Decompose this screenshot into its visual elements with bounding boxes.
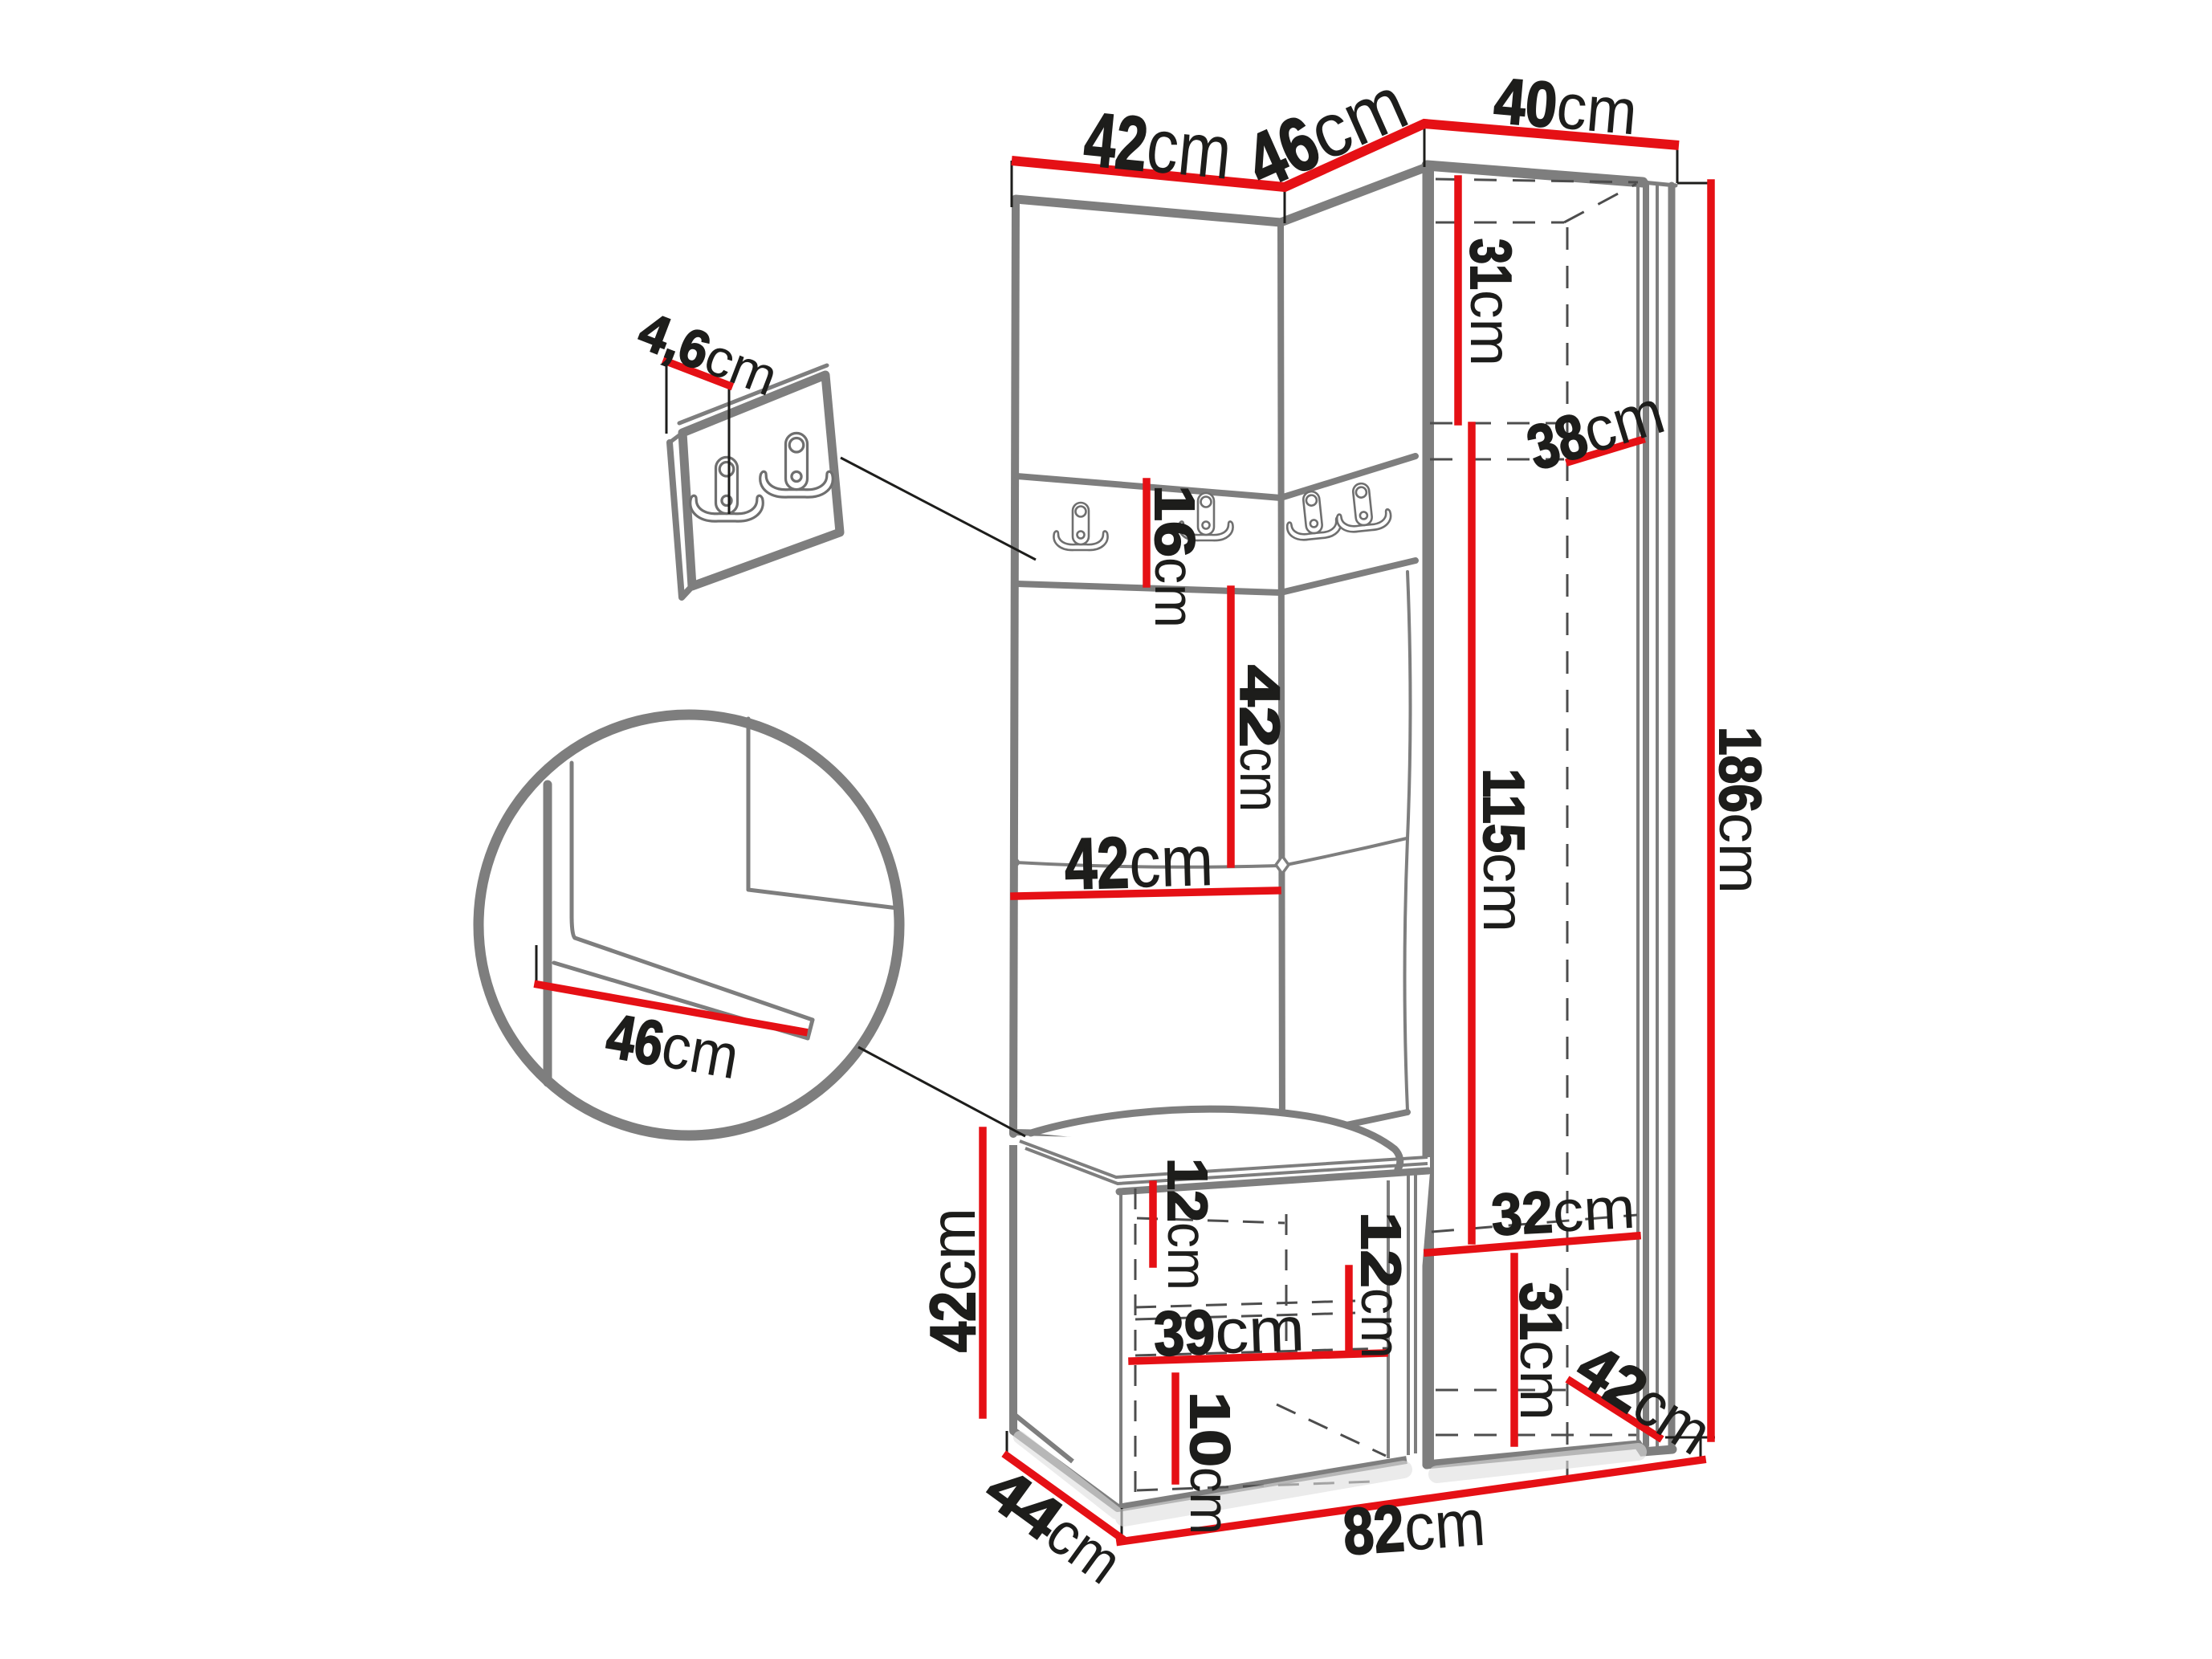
svg-text:12cm: 12cm xyxy=(1156,1158,1219,1290)
svg-text:42cm: 42cm xyxy=(1064,821,1215,905)
svg-text:42cm: 42cm xyxy=(1228,665,1291,812)
svg-text:32cm: 32cm xyxy=(1490,1176,1637,1248)
svg-text:31cm: 31cm xyxy=(1508,1282,1573,1421)
svg-text:186cm: 186cm xyxy=(1707,727,1772,894)
svg-text:42cm: 42cm xyxy=(917,1208,988,1352)
svg-text:16cm: 16cm xyxy=(1143,485,1206,628)
svg-text:31cm: 31cm xyxy=(1458,238,1522,366)
svg-text:39cm: 39cm xyxy=(1153,1293,1306,1369)
svg-text:40cm: 40cm xyxy=(1492,64,1640,148)
svg-text:42cm: 42cm xyxy=(1081,96,1235,195)
svg-text:82cm: 82cm xyxy=(1341,1486,1488,1569)
svg-text:10cm: 10cm xyxy=(1179,1392,1241,1535)
svg-text:12cm: 12cm xyxy=(1350,1212,1412,1359)
svg-text:115cm: 115cm xyxy=(1471,768,1535,932)
